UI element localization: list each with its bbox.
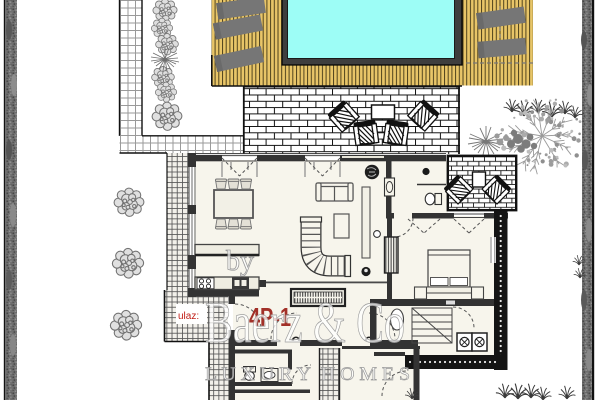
svg-text:L U X U R Y H O M E S: L U X U R Y H O M E S (205, 364, 410, 385)
svg-text:Baerz & Co: Baerz & Co (205, 290, 405, 355)
svg-text:by: by (226, 246, 254, 277)
svg-text:ulaz:: ulaz: (178, 311, 199, 322)
